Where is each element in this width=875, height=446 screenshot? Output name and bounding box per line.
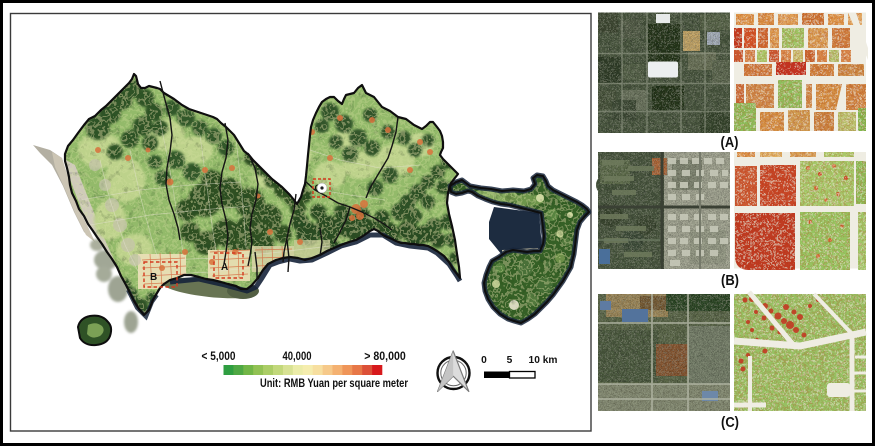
svg-text:B: B [150, 272, 157, 283]
svg-text:0: 0 [481, 355, 487, 366]
svg-text:< 5,000: < 5,000 [202, 351, 236, 363]
svg-text:(A): (A) [721, 135, 739, 151]
svg-text:40,000: 40,000 [283, 351, 312, 363]
svg-text:Unit: RMB Yuan per square mete: Unit: RMB Yuan per square meter [260, 378, 408, 390]
svg-text:> 80,000: > 80,000 [364, 351, 406, 363]
svg-text:(B): (B) [721, 273, 739, 289]
svg-text:(C): (C) [721, 415, 739, 431]
svg-text:10 km: 10 km [529, 355, 558, 366]
svg-text:5: 5 [507, 355, 513, 366]
svg-text:A: A [221, 262, 228, 273]
